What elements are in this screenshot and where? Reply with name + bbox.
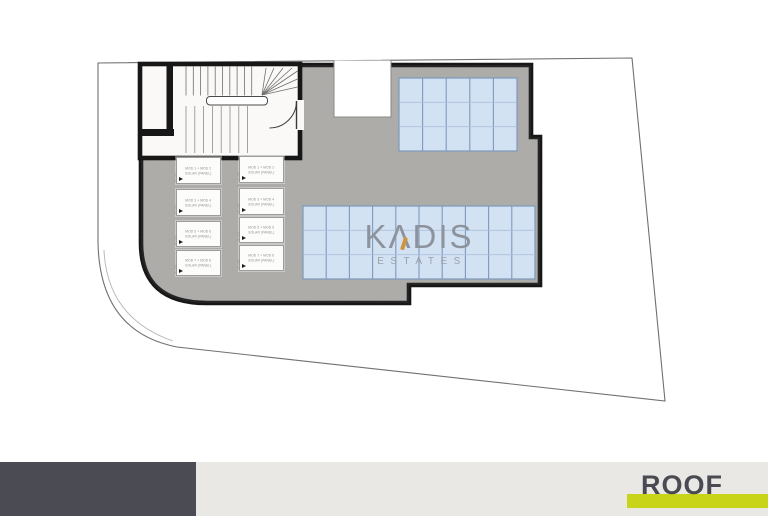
skylight-void: [334, 61, 391, 118]
roof-plan-page: MOD 1 + MOD 2SOLAR (PANEL)S-01MOD 3 + MO…: [0, 0, 768, 516]
unit-marker-icon: [242, 264, 246, 268]
unit-box-label: MOD 5 + MOD 6: [249, 226, 275, 230]
unit-box-sublabel: SOLAR (PANEL): [248, 170, 274, 174]
unit-marker-icon: [242, 176, 246, 180]
unit-box-label: MOD 3 + MOD 4: [186, 198, 212, 202]
stairwell: [140, 64, 300, 158]
unit-box: MOD 7 + MOD 8SOLAR (PANEL): [239, 245, 284, 271]
unit-box-label: MOD 7 + MOD 8: [186, 259, 212, 263]
footer-dark-block: [0, 462, 196, 516]
unit-box-sublabel: SOLAR (PANEL): [185, 171, 211, 175]
unit-marker-icon: [179, 240, 183, 244]
site-plan-drawing: [0, 0, 768, 516]
unit-box-sublabel: SOLAR (PANEL): [248, 202, 274, 206]
unit-box-label: MOD 1 + MOD 2: [186, 166, 212, 170]
unit-box-label: MOD 1 + MOD 2: [249, 165, 275, 169]
unit-box-sublabel: SOLAR (PANEL): [185, 235, 211, 239]
unit-box-label: MOD 7 + MOD 8: [249, 254, 275, 258]
unit-box: MOD 7 + MOD 8SOLAR (PANEL): [176, 250, 221, 276]
unit-marker-icon: [179, 269, 183, 273]
floor-label: ROOF: [641, 470, 723, 501]
unit-marker-icon: [242, 236, 246, 240]
unit-box-sublabel: SOLAR (PANEL): [248, 259, 274, 263]
unit-marker-icon: [179, 209, 183, 213]
door-opening: [294, 100, 304, 130]
footer-band: ROOF: [0, 462, 768, 516]
unit-box-label: MOD 5 + MOD 6: [186, 230, 212, 234]
stairwell-divider-wall: [167, 64, 174, 130]
unit-box: MOD 3 + MOD 4SOLAR (PANEL): [239, 188, 284, 215]
unit-side-label: S-04: [173, 264, 178, 274]
unit-side-label: S-07: [236, 231, 241, 241]
stair-room-wall: [139, 129, 174, 136]
unit-box-sublabel: SOLAR (PANEL): [248, 231, 274, 235]
solar-array-top-right: [399, 78, 517, 151]
unit-side-label: S-02: [173, 204, 178, 214]
solar-array-center: [303, 206, 535, 279]
unit-marker-icon: [179, 177, 183, 181]
unit-side-label: S-06: [236, 203, 241, 213]
unit-box: MOD 3 + MOD 4SOLAR (PANEL): [176, 189, 221, 216]
unit-side-label: S-01: [173, 172, 178, 182]
unit-box-sublabel: SOLAR (PANEL): [185, 264, 211, 268]
unit-box: MOD 1 + MOD 2SOLAR (PANEL): [239, 156, 284, 183]
unit-box: MOD 5 + MOD 6SOLAR (PANEL): [239, 217, 284, 243]
unit-marker-icon: [242, 208, 246, 212]
unit-side-label: S-05: [236, 171, 241, 181]
unit-side-label: S-03: [173, 235, 178, 245]
unit-side-label: S-08: [236, 259, 241, 269]
stair-landing-rail: [207, 97, 268, 106]
unit-box-label: MOD 3 + MOD 4: [249, 197, 275, 201]
unit-box: MOD 5 + MOD 6SOLAR (PANEL): [176, 221, 221, 247]
unit-box: MOD 1 + MOD 2SOLAR (PANEL): [176, 157, 221, 184]
unit-box-sublabel: SOLAR (PANEL): [185, 203, 211, 207]
